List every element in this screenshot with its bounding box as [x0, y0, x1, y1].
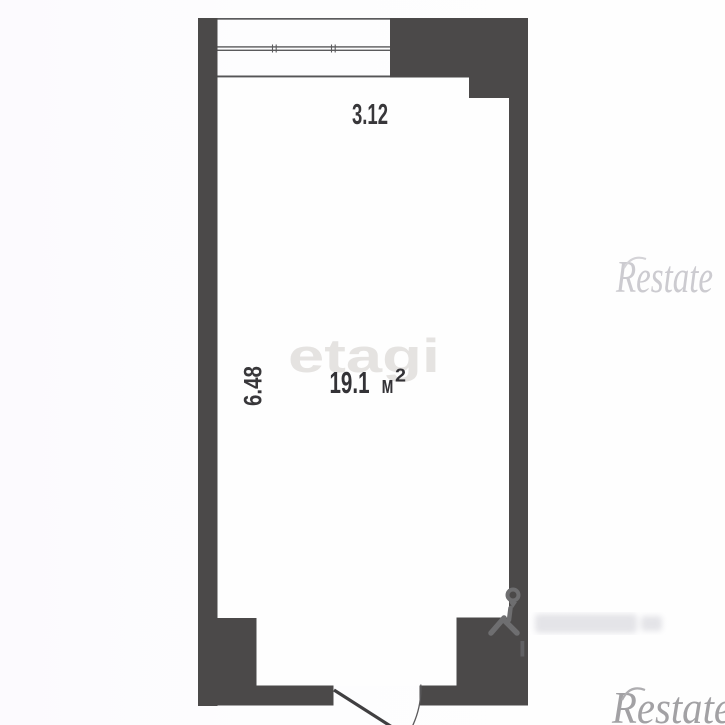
svg-text:3.12: 3.12 [352, 99, 388, 131]
svg-text:19.1: 19.1 [330, 365, 370, 400]
svg-text:2: 2 [395, 366, 406, 386]
svg-text:Restate: Restate [615, 251, 713, 302]
svg-text:м: м [382, 372, 394, 399]
svg-text:6.48: 6.48 [240, 366, 268, 406]
svg-text:Restate: Restate [611, 682, 725, 725]
